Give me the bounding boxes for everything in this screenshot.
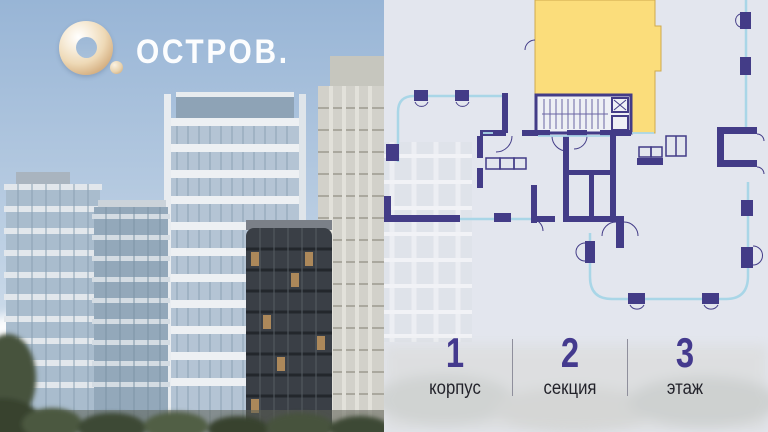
tower-dark <box>246 220 332 432</box>
faded-building <box>384 142 472 342</box>
floor-label: этаж <box>635 378 735 400</box>
photo-panel: ОСТРОВ. <box>0 0 384 432</box>
page: ОСТРОВ. <box>0 0 768 432</box>
section-number: 2 <box>526 331 615 375</box>
floor-number: 3 <box>641 331 730 375</box>
brand-logo: ОСТРОВ. <box>0 0 384 100</box>
info-item-section: 2 секция <box>513 331 627 400</box>
logo-o-ring-icon <box>59 21 113 75</box>
building-label: корпус <box>405 378 505 400</box>
building-number: 1 <box>411 331 500 375</box>
brand-wordmark: ОСТРОВ. <box>136 33 290 72</box>
unit-info-row: 1 корпус 2 секция 3 этаж <box>398 331 742 400</box>
logo-dot-icon <box>110 61 123 74</box>
info-item-floor: 3 этаж <box>628 331 742 400</box>
stairwell <box>536 95 631 133</box>
section-label: секция <box>520 378 620 400</box>
logo-o-hole <box>76 37 97 58</box>
tower-mid-left <box>92 200 170 432</box>
info-item-building: 1 корпус <box>398 331 512 400</box>
